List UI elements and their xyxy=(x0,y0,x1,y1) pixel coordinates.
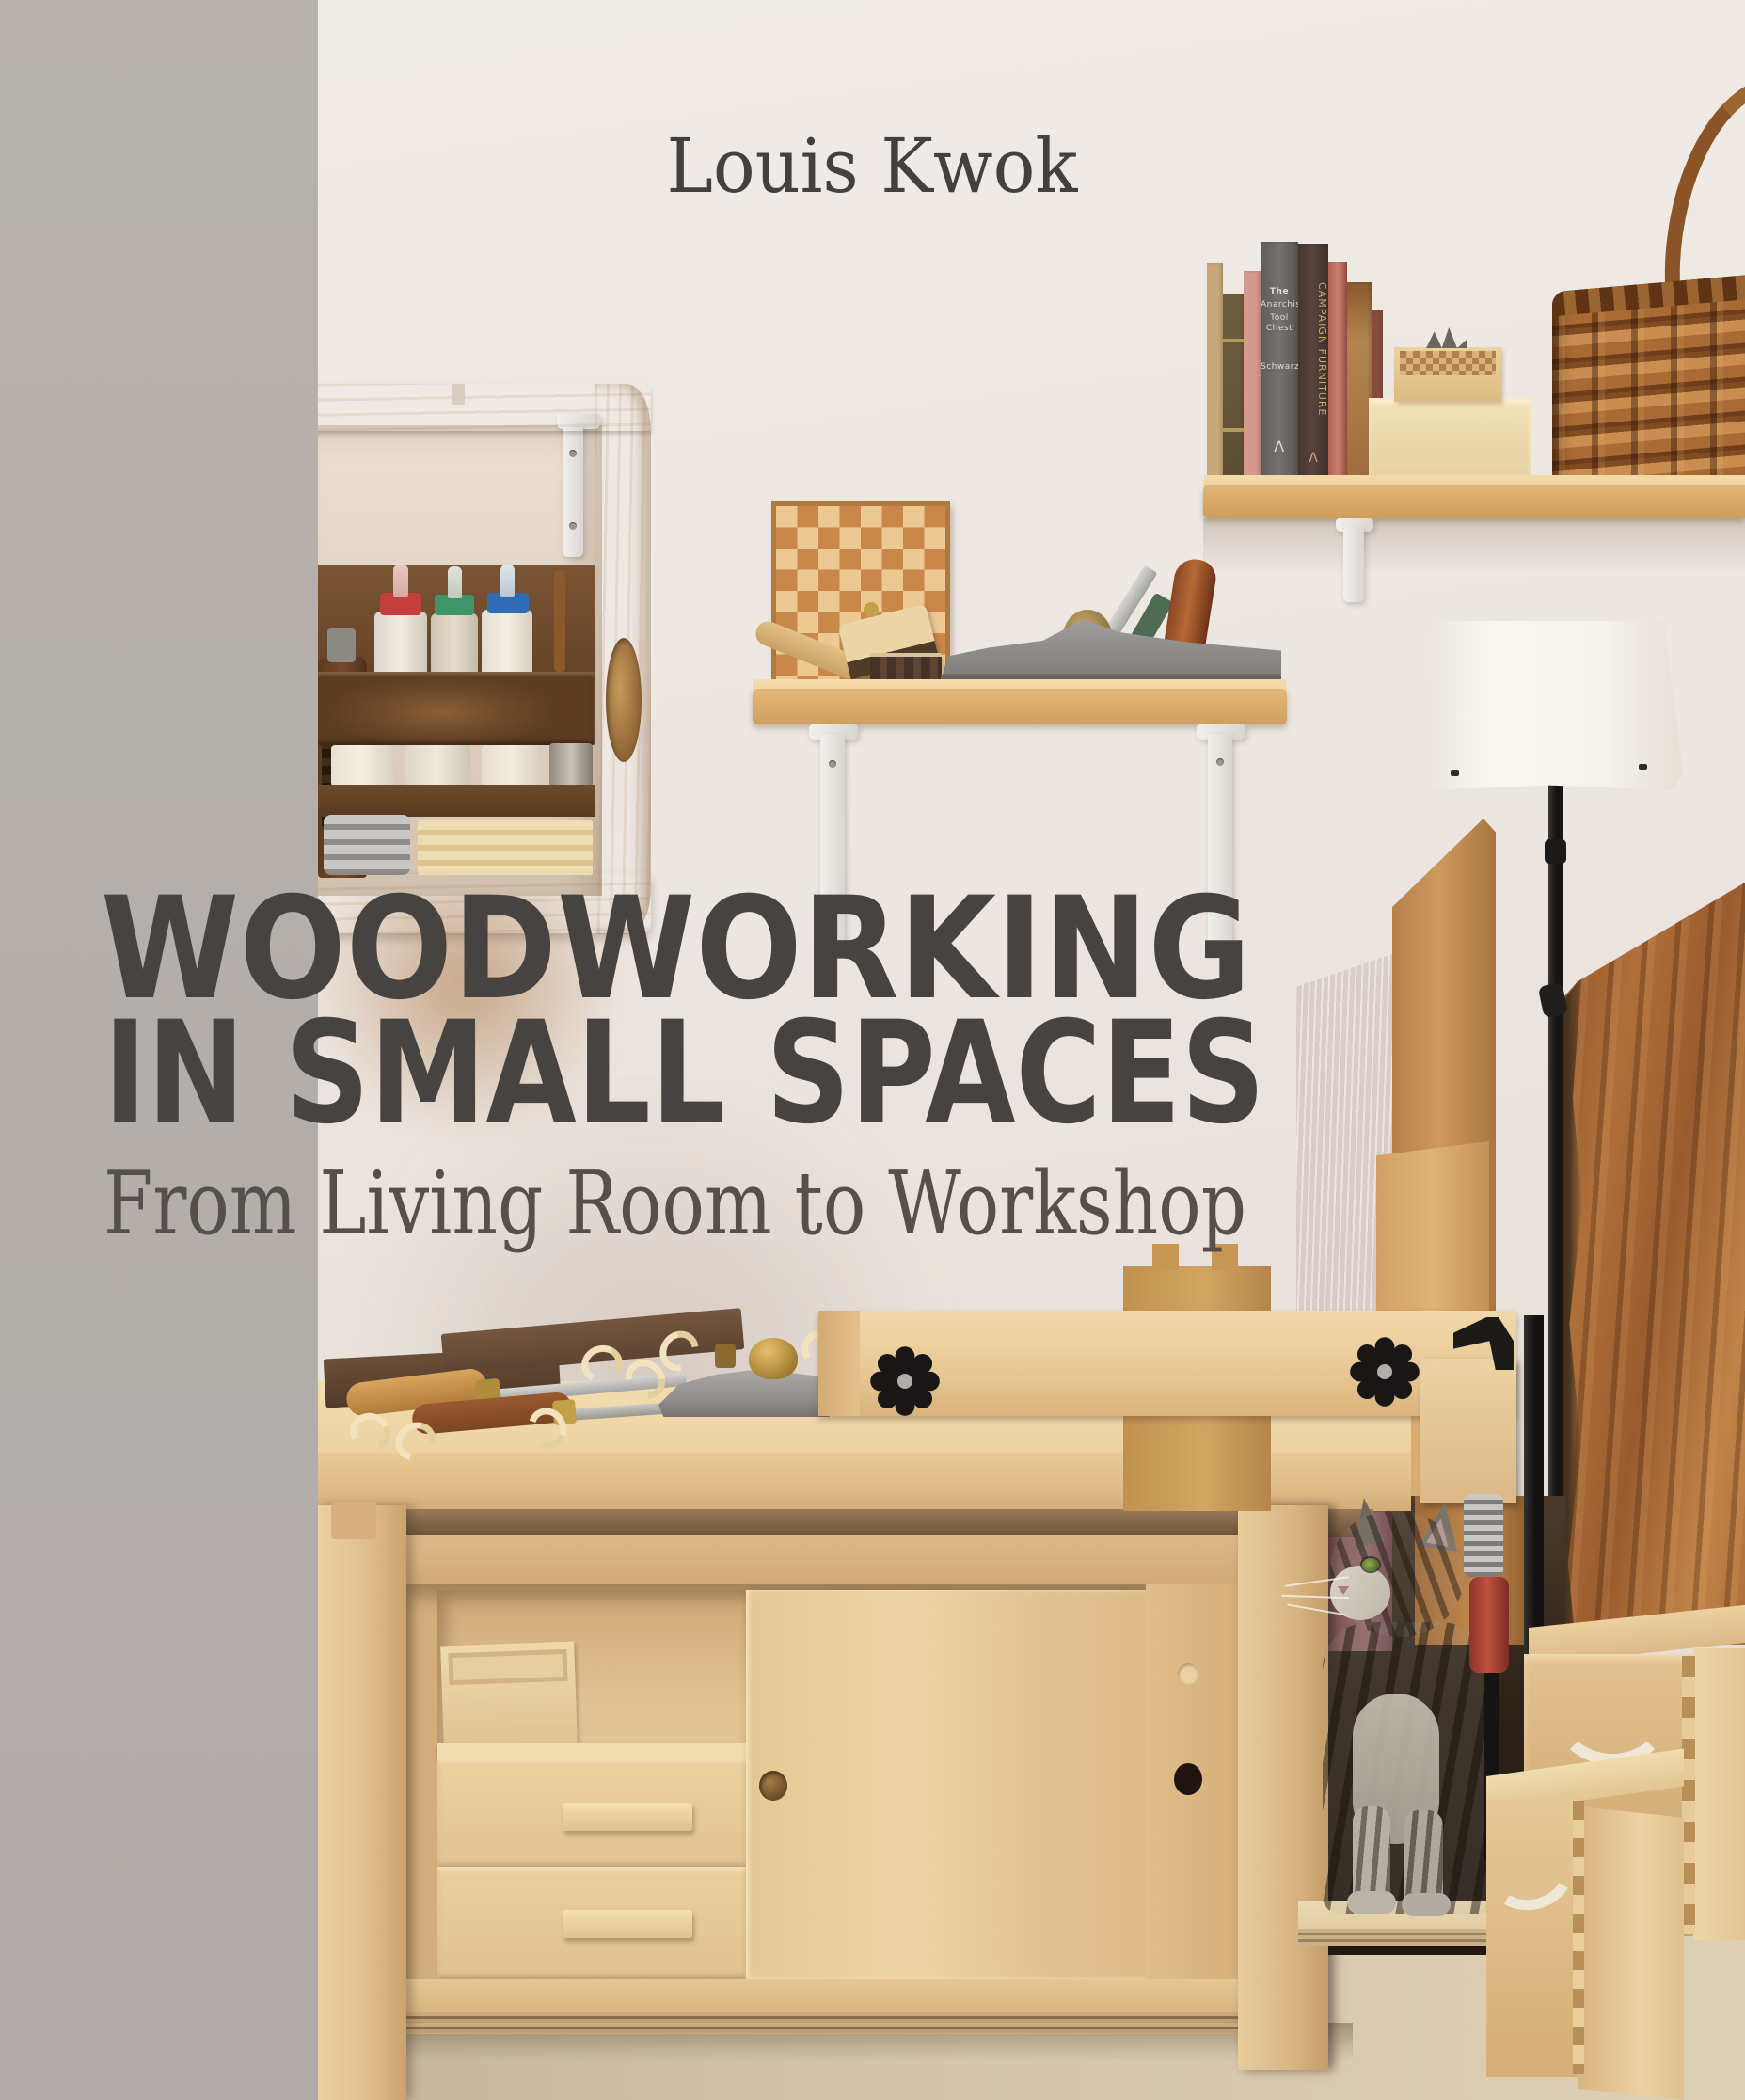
bracket-screw xyxy=(1216,899,1224,907)
spine-author: Schwarz xyxy=(1261,362,1298,373)
compartment-shelf-edge xyxy=(437,1743,746,1758)
big-crate-dovetails xyxy=(1682,1656,1695,1934)
cat-eye xyxy=(1362,1558,1379,1571)
book-spine-pink xyxy=(1244,271,1261,483)
crate-bottom-board xyxy=(299,873,651,933)
book-gold-band xyxy=(1223,339,1244,342)
spine-title-line: Tool Chest xyxy=(1261,313,1298,334)
bench-upper-rail xyxy=(318,1535,1328,1586)
shelf-bracket-arm xyxy=(1343,527,1364,602)
glass-jar xyxy=(549,743,593,787)
glue-nozzle xyxy=(393,565,408,597)
publisher-mark: Λ xyxy=(1261,441,1298,452)
cabinet-sliding-door xyxy=(746,1590,1146,1979)
crate-top-notch xyxy=(452,384,465,405)
bench-cabinet xyxy=(406,1584,1238,2034)
spine-title-line: The xyxy=(1261,287,1298,297)
small-crate-dovetails xyxy=(1573,1801,1584,2074)
glue-bottle-green xyxy=(431,613,478,677)
tool-shelf-face xyxy=(753,689,1287,724)
candle-white-3 xyxy=(482,745,542,787)
bracket-screw xyxy=(829,903,836,911)
stile-finger-hole xyxy=(1174,1763,1202,1795)
book-spine-campaign-furniture: CAMPAIGN FURNITURE Λ xyxy=(1298,244,1328,483)
block-plane-adjuster xyxy=(715,1344,736,1368)
book-spine-tan xyxy=(1207,263,1223,483)
block-plane-brass-knob xyxy=(749,1338,798,1379)
leg-tenon xyxy=(331,1502,376,1539)
bracket-screw xyxy=(569,450,577,457)
glue-bottle-blue xyxy=(482,610,532,677)
bench-leg-right xyxy=(1238,1505,1328,2070)
book-spine-anarchists-tool-chest: The Anarchist's Tool Chest Schwarz Λ xyxy=(1261,242,1298,483)
pine-block xyxy=(1369,398,1531,483)
basket-body xyxy=(1552,275,1745,500)
crate-mount-bracket-arm xyxy=(563,423,583,557)
bracket-screw xyxy=(1216,758,1224,766)
spine-title-vertical: CAMPAIGN FURNITURE xyxy=(1298,255,1328,443)
mini-chest-pattern xyxy=(1400,351,1496,375)
glue-bottle-red xyxy=(374,612,427,677)
book-cover: The Anarchist's Tool Chest Schwarz Λ CAM… xyxy=(0,0,1745,2100)
mallet-brass-pin xyxy=(864,602,879,617)
glue-nozzle xyxy=(500,565,515,597)
metal-tins xyxy=(324,815,410,875)
tenon-tab xyxy=(1212,1244,1238,1270)
spine-title-line: Anarchist's xyxy=(1261,300,1298,310)
lamp-shade-speck xyxy=(1639,764,1647,770)
vise-knob-left xyxy=(867,1344,943,1419)
big-crate-right-face xyxy=(1693,1648,1745,1940)
lamp-shade-speck xyxy=(1451,770,1459,776)
big-crate-rope-handle xyxy=(1554,1663,1671,1765)
vise-end-block xyxy=(1420,1359,1516,1503)
vise-rail-end-step xyxy=(818,1311,860,1416)
drawer-lower-pull xyxy=(563,1910,692,1938)
glue-nozzle xyxy=(448,566,462,598)
lamp-pole-joint xyxy=(1545,839,1566,864)
candle-white-1 xyxy=(331,745,393,787)
candle-white-2 xyxy=(405,745,470,787)
mini-chest-box xyxy=(1394,347,1501,402)
publisher-mark: Λ xyxy=(1298,451,1328,466)
glue-caddy-front xyxy=(316,672,595,745)
shelf-board-face xyxy=(1203,485,1745,518)
book-spine-red xyxy=(1328,262,1347,483)
live-edge-slab xyxy=(1550,883,1745,1645)
shelf-wall-shadow xyxy=(1203,518,1745,575)
caddy-lower-rail xyxy=(316,785,595,817)
tool-shelf-bracket-right-arm xyxy=(1208,734,1232,945)
small-crate-right-face xyxy=(1578,1806,1684,2100)
door-finger-hole xyxy=(759,1771,787,1801)
storage-box-lid xyxy=(448,1649,567,1685)
clamp-red-handle xyxy=(1469,1577,1509,1673)
storage-box xyxy=(440,1642,578,1749)
bracket-screw xyxy=(829,760,836,768)
benchtop-shadow-strip xyxy=(318,1509,1373,1537)
stir-stick xyxy=(554,570,565,672)
book-spine-olive xyxy=(1223,294,1244,483)
crate-hand-hole xyxy=(606,638,642,762)
cover-side-band xyxy=(0,0,318,2100)
tool-shelf-bracket-left-arm xyxy=(820,734,845,948)
cat-paw xyxy=(1402,1893,1451,1916)
bench-leg-left xyxy=(318,1505,406,2100)
pine-board-stack xyxy=(418,820,593,875)
cat-paw xyxy=(1347,1891,1396,1914)
plywood-base-edge xyxy=(406,2012,1238,2034)
stile-dowel xyxy=(1178,1663,1198,1684)
drawer-upper-pull xyxy=(563,1803,692,1831)
vise-knob-right xyxy=(1347,1334,1422,1409)
cabinet-bottom-rail xyxy=(406,1979,1238,2016)
book-gold-band xyxy=(1223,428,1244,432)
tenon-tab xyxy=(1152,1244,1179,1270)
spray-bottle-cap xyxy=(327,628,356,662)
clamp-spring xyxy=(1464,1494,1503,1577)
bracket-screw xyxy=(569,522,577,530)
